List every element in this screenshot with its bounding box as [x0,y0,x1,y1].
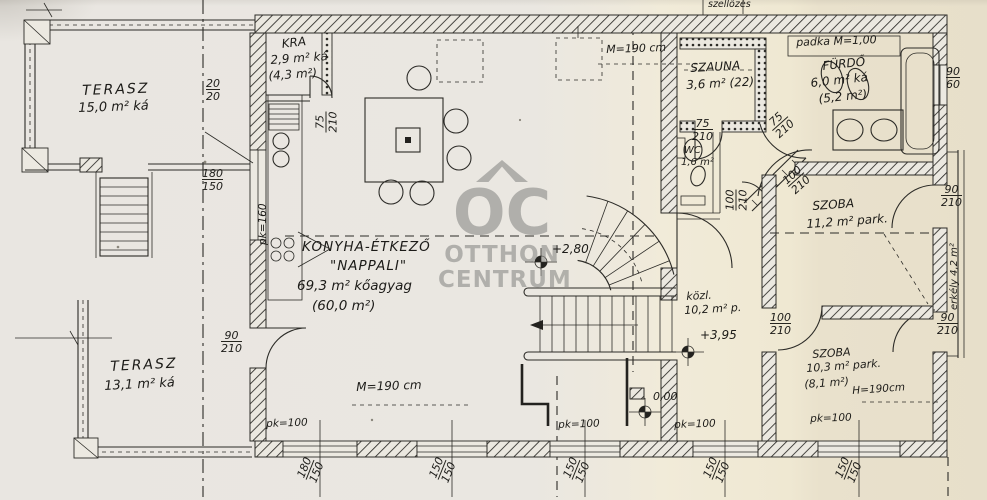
note-szellozes: szellőzés [708,0,751,10]
room-szoba1-name: SZOBA [812,197,855,212]
dim-bath-window: 9060 [946,66,960,90]
dim-szoba2-balcony-door: 90210 [937,312,958,336]
room-nappali-line3: 69,3 m² kőagyag [297,279,412,293]
room-kozlekedo-area: 10,2 m² p. [684,302,742,317]
room-szauna-name: SZAUNA [690,59,741,74]
note-elev-living: +2,80 [552,243,589,256]
note-height-bottom: M=190 cm [356,379,422,394]
room-szoba2-area-alt: (8,1 m²) [804,376,849,391]
room-kozlekedo-name: közl. [686,290,712,303]
note-elev-upper: +3,95 [700,329,737,342]
dim-left-window: 180150 [202,168,223,192]
room-nappali-line4: (60,0 m²) [312,299,375,313]
dim-kamra-door: 75210 [315,112,339,133]
room-nappali-line2: "NAPPALI" [330,259,407,273]
room-terasz1-name: TERASZ [82,82,150,99]
room-nappali-line1: KONYHA-ÉTKEZŐ [302,240,431,254]
room-wc-name: WC [684,146,701,157]
room-terasz2-name: TERASZ [110,356,178,374]
parapet-label: pk=100 [674,419,716,431]
note-elev-ground: 0,00 [653,391,678,403]
room-erkely-label: erkély 4,2 m² [950,243,961,310]
floorplan-page: OC OTTHON CENTRUM TERASZ 15,0 m² ká KRA … [0,0,987,500]
dim-szoba1-balcony-door: 90210 [941,184,962,208]
parapet-label: pk=100 [266,418,308,430]
room-terasz1-area: 15,0 m² ká [78,100,149,116]
note-height-top: M=190 cm [606,42,666,56]
parapet-label: pk=160 [258,203,269,245]
room-wc-area: 1,6 m² [681,158,714,169]
room-kamra-name: KRA [281,35,307,50]
dim-wc-corridor-door: 100210 [725,190,749,211]
dim-terrace2-door: 90210 [221,330,242,354]
parapet-label: pk=100 [558,419,600,431]
dim-szauna-door: 75210 [692,118,713,142]
parapet-label: pk=100 [810,413,852,425]
note-padka: padka M=1,00 [796,34,877,48]
dim-terrace-window: 2020 [206,78,220,102]
dim-szoba2-door: 100210 [770,312,791,336]
